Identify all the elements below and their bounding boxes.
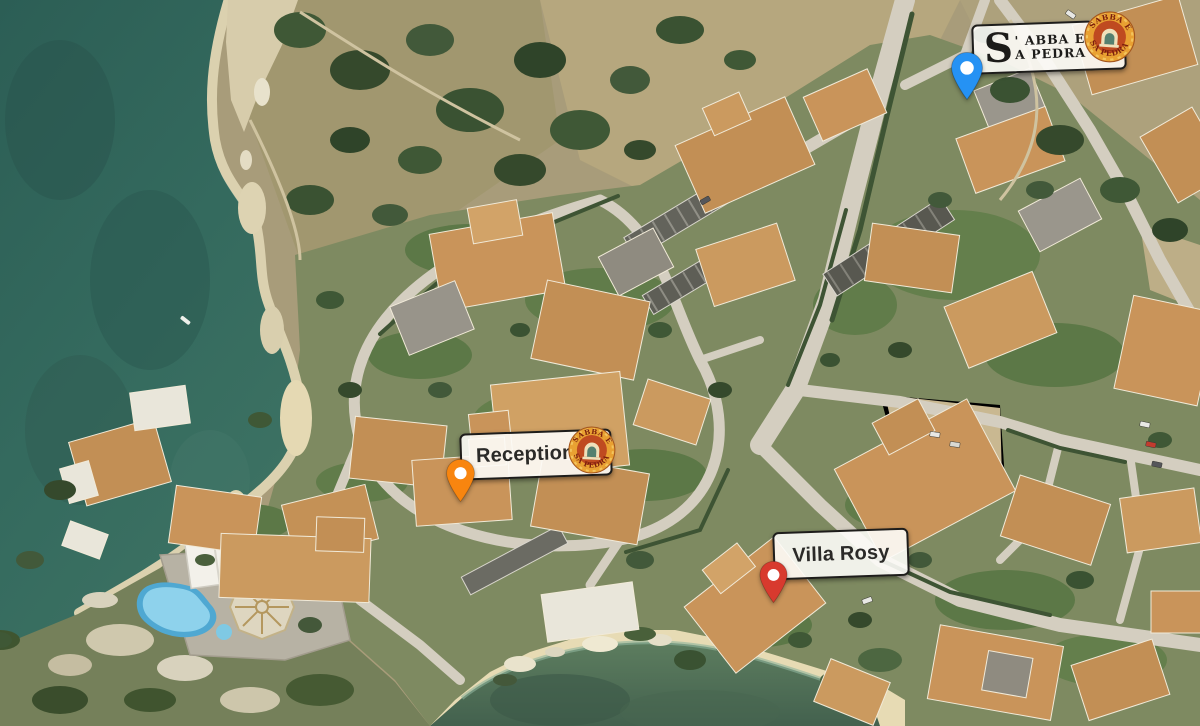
map-pin-villa-rosy[interactable] — [758, 560, 789, 604]
reception-label-text: Reception — [476, 442, 575, 468]
resort-logo: SABBA E SA PEDRA — [1082, 9, 1138, 65]
pin-body[interactable] — [447, 459, 475, 501]
resort-name-label: S ' ABBA E A PEDRA SABBA E SA PEDRA — [971, 19, 1127, 74]
satellite-map-image[interactable] — [0, 0, 1200, 726]
satellite-map-view[interactable]: S ' ABBA E A PEDRA SABBA E SA PEDRA — [0, 0, 1200, 726]
resort-name-dropcap: S — [983, 28, 1013, 69]
pin-body[interactable] — [952, 52, 983, 99]
map-pin-reception[interactable] — [444, 458, 477, 503]
villa-rosy-label: Villa Rosy — [772, 528, 910, 581]
villa-rosy-label-text: Villa Rosy — [792, 541, 890, 567]
map-pin-resort-entrance[interactable] — [948, 51, 986, 101]
pin-body[interactable] — [760, 561, 787, 602]
reception-label: Reception SABBA E SA PEDRA — [459, 428, 613, 480]
resort-name-line2: A PEDRA — [1015, 46, 1086, 62]
reception-logo: SABBA E SA PEDRA — [567, 425, 617, 475]
